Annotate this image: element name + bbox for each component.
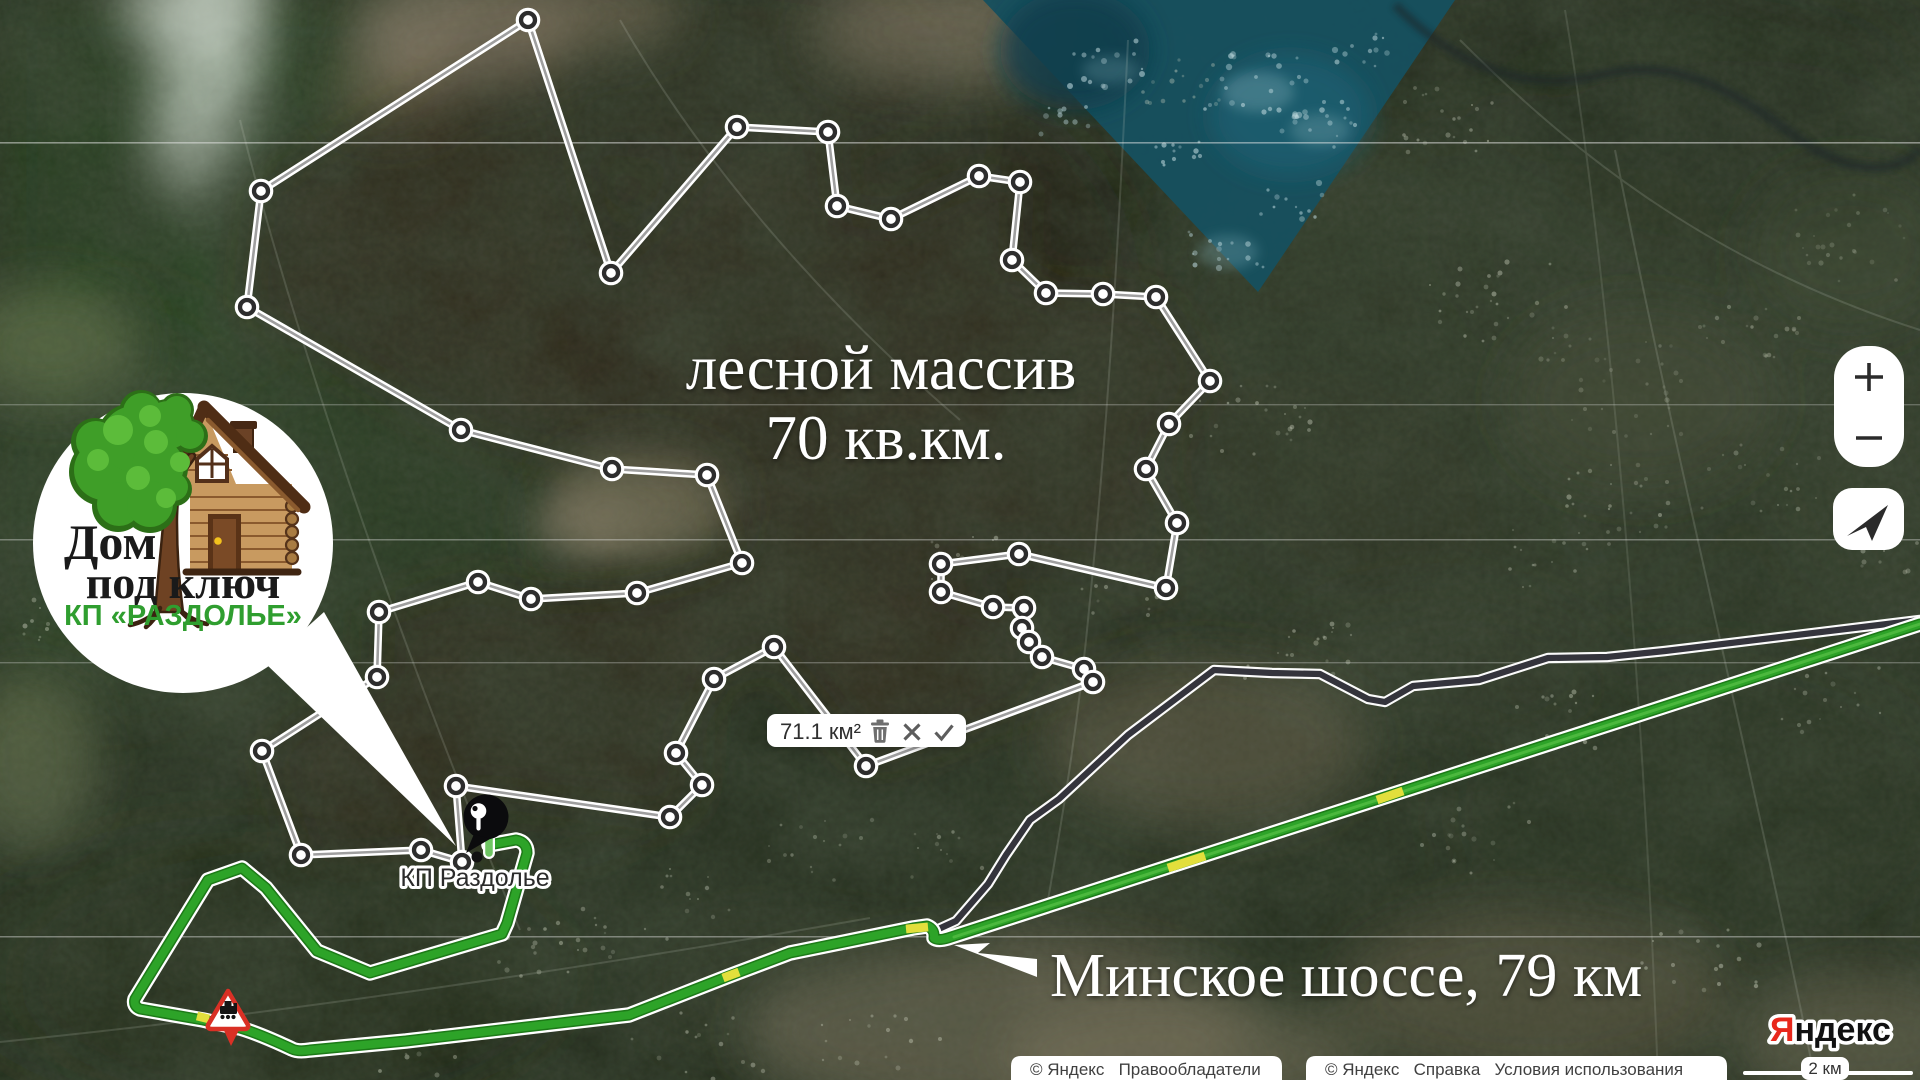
svg-text:70 кв.км.: 70 кв.км. — [765, 403, 1006, 473]
svg-text:© Яндекс Правообладатели: © Яндекс Правообладатели — [1030, 1060, 1261, 1079]
svg-text:Яндекс: Яндекс — [1770, 1011, 1891, 1049]
svg-text:Минское шоссе, 79 км: Минское шоссе, 79 км — [1050, 942, 1642, 1010]
svg-text:© Яндекс Справка Условия и: © Яндекс Справка Условия использования — [1325, 1060, 1683, 1079]
svg-text:71.1 км²: 71.1 км² — [780, 719, 861, 744]
svg-text:2 км: 2 км — [1808, 1059, 1841, 1078]
svg-text:лесной массив: лесной массив — [686, 333, 1076, 403]
svg-text:КП Раздолье: КП Раздолье — [400, 864, 549, 892]
svg-text:КП «РАЗДОЛЬЕ»: КП «РАЗДОЛЬЕ» — [64, 600, 302, 632]
